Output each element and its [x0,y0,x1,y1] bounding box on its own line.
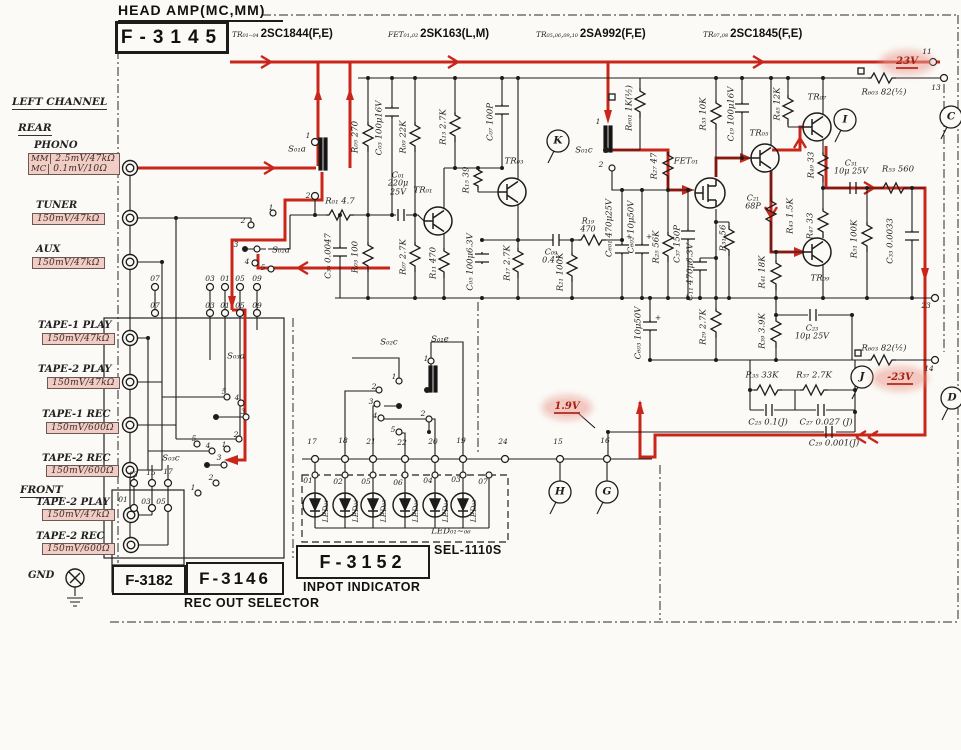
led-05 [361,493,385,517]
front-heading: FRONT [20,484,63,498]
board-label-f3182: F-3182 [112,565,186,595]
led-04 [423,493,447,517]
gnd-label: GND [28,570,54,581]
jack-phono [123,161,138,176]
part-spec-tr01-04: TR₀₁₋₀₄ 2SC1844(F,E) [232,28,333,40]
part-ref: TR₀₁₋₀₄ [232,30,259,39]
transistor-TR05 [751,144,779,172]
fet-FET01 [695,178,725,208]
led-02 [333,493,357,517]
board-label-f3152: F-3152 [296,545,430,579]
led-array [303,493,475,517]
voltage-value: -23V [887,372,913,385]
part-type: 2SA992(F,E) [580,28,646,40]
transistor-TR01 [424,207,452,235]
jack-tape2-play [123,375,138,390]
jack-front-rec [124,538,139,553]
part-type: 2SC1845(F,E) [730,28,802,40]
schematic-canvas [0,0,961,750]
input-indicator-caption: INPOT INDICATOR [303,580,420,594]
sel-1110s-label: SEL-1110S [434,543,502,557]
left-channel-heading: LEFT CHANNEL [12,96,107,110]
voltage-value: 1.9V [554,401,579,414]
part-spec-fet01-02: FET₀₁,₀₂ 2SK163(L,M) [388,28,489,40]
part-type: 2SK163(L,M) [420,28,489,40]
part-type: 2SC1844(F,E) [261,28,333,40]
rear-heading: REAR [18,122,52,136]
rec-out-selector-caption: REC OUT SELECTOR [184,596,320,610]
voltage-note-neg: -23V [876,370,924,387]
board-label-f3146: F-3146 [186,562,284,595]
transistor-TR07 [803,113,831,141]
transistor-TR03 [498,178,526,206]
jack-tuner [123,211,138,226]
board-label-f3145: F-3145 [115,21,229,54]
jack-aux [123,255,138,270]
part-spec-tr07-08: TR₀₇,₀₈ 2SC1845(F,E) [703,28,802,40]
voltage-note-bias: 1.9V [546,399,588,416]
input-jacks [66,161,139,588]
voltage-value: 23V [896,56,918,69]
schematic-page: HEAD AMP(MC,MM) F-3145 TR₀₁₋₀₄ 2SC1844(F… [0,0,961,750]
gnd-terminal [66,569,84,587]
jack-tape2-rec [123,463,138,478]
part-ref: FET₀₁,₀₂ [388,30,418,39]
part-ref: TR₀₇,₀₈ [703,30,728,39]
part-ref: TR₀₅,₀₆,₀₉,₁₀ [536,30,578,39]
led-03 [451,493,475,517]
voltage-note-pos: 23V [884,54,930,71]
jack-tape1-play [123,331,138,346]
connector-terminals [131,59,948,512]
transistor-TR09 [803,238,831,266]
page-title: HEAD AMP(MC,MM) [118,2,283,22]
led-06 [393,493,417,517]
part-spec-tr05-10: TR₀₅,₀₆,₀₉,₁₀ 2SA992(F,E) [536,28,646,40]
jack-tape1-rec [123,418,138,433]
led-01 [303,493,327,517]
